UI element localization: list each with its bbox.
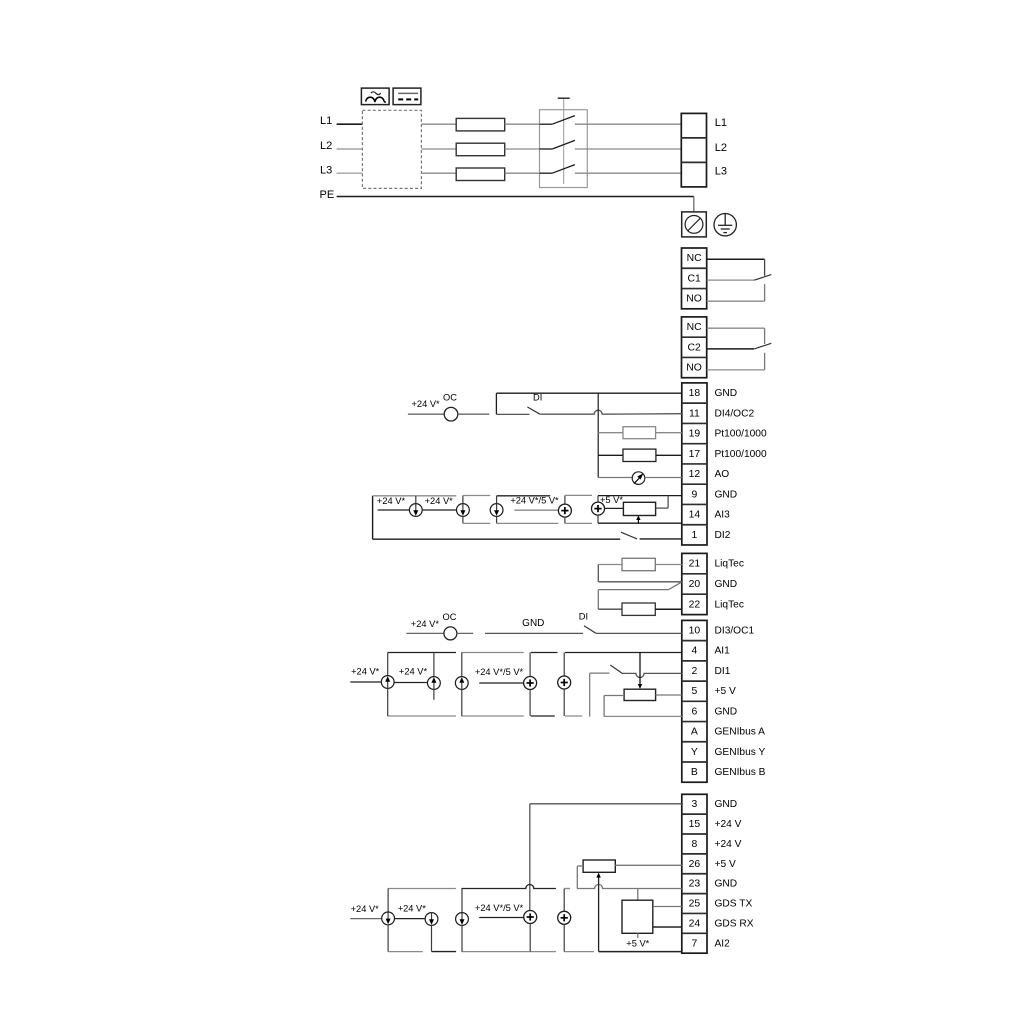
svg-text:+5 V: +5 V	[715, 859, 736, 870]
svg-text:L3: L3	[715, 165, 727, 177]
svg-text:+24 V*: +24 V*	[377, 496, 406, 506]
svg-text:+24 V*: +24 V*	[351, 904, 380, 914]
svg-text:26: 26	[689, 859, 701, 870]
svg-text:OC: OC	[443, 612, 457, 622]
svg-text:B: B	[691, 767, 698, 778]
svg-text:GDS TX: GDS TX	[715, 899, 753, 910]
svg-text:20: 20	[689, 579, 701, 590]
svg-text:+24 V*/5 V*: +24 V*/5 V*	[510, 496, 559, 506]
svg-text:+5 V: +5 V	[715, 686, 736, 697]
svg-text:L1: L1	[320, 115, 332, 127]
svg-text:6: 6	[692, 706, 698, 717]
svg-text:L1: L1	[715, 117, 727, 129]
svg-text:A: A	[691, 727, 698, 738]
svg-text:4: 4	[692, 646, 698, 657]
svg-text:11: 11	[689, 408, 700, 419]
svg-text:+24 V*: +24 V*	[425, 496, 454, 506]
svg-text:C2: C2	[687, 342, 701, 353]
svg-text:GND: GND	[715, 489, 738, 500]
svg-text:12: 12	[689, 469, 701, 480]
svg-text:OC: OC	[443, 392, 457, 402]
svg-text:GND: GND	[715, 799, 738, 810]
svg-text:15: 15	[689, 819, 701, 830]
svg-text:LiqTec: LiqTec	[715, 559, 744, 570]
svg-text:Pt100/1000: Pt100/1000	[715, 449, 767, 460]
svg-text:Pt100/1000: Pt100/1000	[715, 429, 767, 440]
svg-text:+24 V*: +24 V*	[411, 619, 440, 629]
svg-text:GENIbus B: GENIbus B	[715, 767, 766, 778]
svg-text:25: 25	[689, 899, 701, 910]
svg-text:+24 V: +24 V	[715, 839, 742, 850]
svg-text:+24 V*/5 V*: +24 V*/5 V*	[475, 903, 524, 913]
svg-text:+24 V*: +24 V*	[399, 666, 428, 676]
svg-text:DI: DI	[533, 392, 542, 402]
svg-text:+5 V*: +5 V*	[626, 938, 649, 948]
svg-text:L2: L2	[320, 140, 332, 152]
svg-text:1: 1	[692, 530, 698, 541]
svg-text:DI4/OC2: DI4/OC2	[715, 408, 755, 419]
svg-text:8: 8	[692, 839, 698, 850]
svg-text:17: 17	[689, 449, 701, 460]
svg-text:GDS RX: GDS RX	[715, 918, 754, 929]
svg-text:9: 9	[692, 489, 698, 500]
svg-text:+24 V*: +24 V*	[412, 399, 441, 409]
svg-text:PE: PE	[320, 189, 335, 201]
svg-text:23: 23	[689, 879, 701, 890]
svg-text:GND: GND	[715, 579, 738, 590]
svg-text:GND: GND	[715, 706, 738, 717]
svg-text:24: 24	[689, 918, 701, 929]
svg-text:DI3/OC1: DI3/OC1	[715, 626, 755, 637]
svg-text:+5 V*: +5 V*	[600, 495, 623, 505]
svg-text:AO: AO	[715, 469, 730, 480]
svg-text:GND: GND	[522, 618, 544, 629]
svg-text:2: 2	[692, 666, 698, 677]
svg-text:14: 14	[689, 510, 701, 521]
svg-text:AI3: AI3	[715, 510, 731, 521]
svg-text:+24 V*: +24 V*	[398, 904, 427, 914]
svg-text:GENIbus Y: GENIbus Y	[715, 747, 766, 758]
svg-text:NC: NC	[687, 253, 703, 264]
svg-text:LiqTec: LiqTec	[715, 599, 744, 610]
svg-text:7: 7	[692, 938, 698, 949]
svg-text:GENIbus A: GENIbus A	[715, 727, 766, 738]
svg-text:3: 3	[692, 799, 698, 810]
svg-text:GND: GND	[715, 388, 738, 399]
svg-text:18: 18	[689, 388, 701, 399]
svg-text:+24 V*: +24 V*	[351, 666, 380, 676]
svg-text:+24 V: +24 V	[715, 819, 742, 830]
svg-text:NO: NO	[686, 363, 702, 374]
svg-text:C1: C1	[687, 273, 701, 284]
svg-text:NO: NO	[686, 294, 702, 305]
svg-text:L2: L2	[715, 142, 727, 154]
svg-text:AI2: AI2	[715, 938, 731, 949]
svg-text:22: 22	[689, 599, 701, 610]
svg-text:L3: L3	[320, 164, 332, 176]
svg-text:AI1: AI1	[715, 646, 731, 657]
svg-text:10: 10	[689, 626, 701, 637]
svg-text:NC: NC	[687, 322, 703, 333]
svg-text:DI1: DI1	[715, 666, 731, 677]
svg-text:+24 V*/5 V*: +24 V*/5 V*	[475, 667, 524, 677]
svg-text:5: 5	[692, 686, 698, 697]
svg-text:21: 21	[689, 559, 701, 570]
svg-text:19: 19	[689, 429, 701, 440]
svg-text:DI2: DI2	[715, 530, 731, 541]
svg-text:DI: DI	[579, 612, 588, 622]
svg-text:GND: GND	[715, 879, 738, 890]
svg-text:Y: Y	[691, 747, 698, 758]
